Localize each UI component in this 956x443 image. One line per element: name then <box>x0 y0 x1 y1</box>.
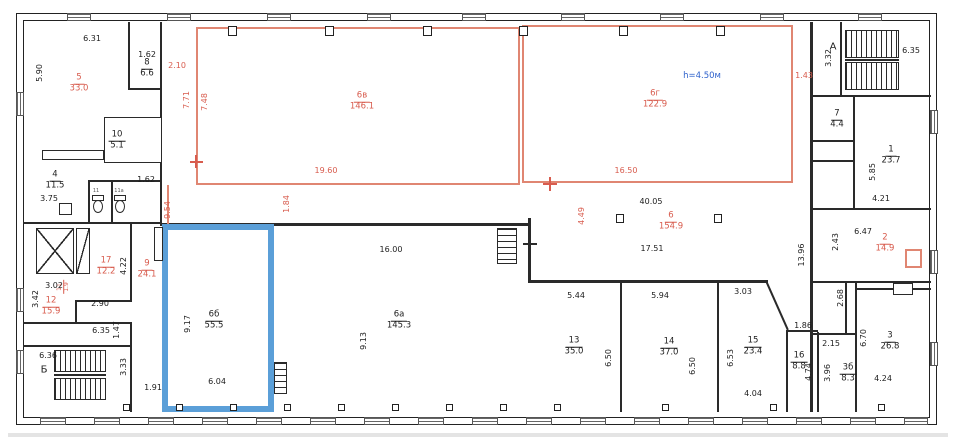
window <box>930 342 938 366</box>
window <box>256 417 282 425</box>
tick <box>529 237 531 251</box>
window <box>267 13 291 21</box>
dim-19-60: 19.60 <box>315 167 338 175</box>
stairs-a-flight <box>845 62 899 90</box>
room-label-10: 105.1 <box>109 131 126 152</box>
room-label-17: 1712.2 <box>97 257 116 278</box>
stairs-b-flight <box>54 378 106 400</box>
pilaster <box>230 404 237 411</box>
window <box>310 417 336 425</box>
dim-2-43: 2.43 <box>832 233 840 251</box>
dim-5-94: 5.94 <box>651 292 669 300</box>
window <box>796 417 822 425</box>
toilet-tank <box>114 195 126 201</box>
wall <box>810 22 813 412</box>
window <box>760 13 784 21</box>
window <box>526 417 552 425</box>
dim-2-15: 2.15 <box>822 340 840 348</box>
toilet-bowl <box>93 200 103 213</box>
dim-7-48: 7.48 <box>201 93 209 111</box>
red-tick <box>195 155 197 168</box>
floor-plan: 533.0 86.6 105.1 411.5 1712.2 924.1 1215… <box>0 0 956 443</box>
wall <box>853 95 855 208</box>
window <box>904 417 928 425</box>
wall <box>717 282 719 412</box>
window <box>364 417 390 425</box>
dim-9-17: 9.17 <box>184 315 192 333</box>
dim-1-62-b: 1.62 <box>137 176 155 184</box>
room-label-12: 1215.9 <box>42 297 61 318</box>
room-label-6: 6154.9 <box>659 212 683 233</box>
dim-6-53: 6.53 <box>727 349 735 367</box>
dim-4-22: 4.22 <box>120 257 128 275</box>
wall <box>130 322 132 412</box>
pilaster <box>338 404 345 411</box>
wall <box>128 88 162 90</box>
wall <box>23 222 162 224</box>
room-label-9: 924.1 <box>138 260 157 281</box>
window <box>930 250 938 274</box>
dim-9-54: 9.54 <box>164 201 172 219</box>
window <box>40 417 66 425</box>
column <box>714 214 722 223</box>
column <box>616 214 624 223</box>
stairs-a-flight <box>845 30 899 58</box>
dim-3-32: 3.32 <box>825 49 833 67</box>
pilaster <box>123 404 130 411</box>
toilet-tank <box>92 195 104 201</box>
toilet-bowl <box>115 200 125 213</box>
red-tick <box>549 177 551 191</box>
column <box>619 26 628 36</box>
window <box>850 417 876 425</box>
dim-6-35-b: 6.35 <box>902 47 920 55</box>
wall <box>845 59 899 61</box>
dim-2-10: 2.10 <box>168 62 186 70</box>
dim-4-24: 4.24 <box>874 375 892 383</box>
wc-label-11a: 11а <box>114 188 123 194</box>
wall <box>54 374 106 376</box>
dim-6-04: 6.04 <box>208 378 226 386</box>
dim-6-50-b: 6.50 <box>689 357 697 375</box>
radiator <box>154 227 163 261</box>
window <box>561 13 585 21</box>
dim-3-75: 3.75 <box>40 195 58 203</box>
room-label-7: 74.4 <box>830 110 844 131</box>
pilaster <box>770 404 777 411</box>
dim-1-91: 1.91 <box>144 384 162 392</box>
column <box>228 26 237 36</box>
dim-5-90: 5.90 <box>36 64 44 82</box>
room-label-14: 1437.0 <box>660 338 679 359</box>
column <box>325 26 334 36</box>
pilaster <box>662 404 669 411</box>
dim-1-47: 1.47 <box>113 321 121 339</box>
dim-6-35-a: 6.35 <box>92 327 110 335</box>
pilaster <box>284 404 291 411</box>
dim-1-62-a: 1.62 <box>138 51 156 59</box>
dim-9-13: 9.13 <box>360 332 368 350</box>
dim-7-71: 7.71 <box>183 91 191 109</box>
wall <box>111 182 113 222</box>
window <box>167 13 191 21</box>
dim-3-42: 3.42 <box>32 290 40 308</box>
column <box>519 26 528 36</box>
dim-6-31: 6.31 <box>83 35 101 43</box>
dim-16-00: 16.00 <box>380 246 403 254</box>
window <box>660 13 684 21</box>
wall <box>23 345 132 347</box>
window <box>930 110 938 134</box>
window <box>16 350 24 374</box>
wall <box>75 300 77 324</box>
wall <box>855 282 857 412</box>
dim-16-50: 16.50 <box>615 167 638 175</box>
pilaster <box>176 404 183 411</box>
dim-3-03: 3.03 <box>734 288 752 296</box>
dim-3-33: 3.33 <box>120 358 128 376</box>
pilaster <box>446 404 453 411</box>
wall <box>840 22 842 95</box>
elevator-shaft <box>36 228 74 274</box>
wall <box>812 140 855 142</box>
dim-6-70: 6.70 <box>860 329 868 347</box>
ceiling-height-note: h=4.50м <box>683 72 721 81</box>
elevator-shaft-small <box>76 228 90 274</box>
room-label-6b: 6б55.5 <box>205 311 224 332</box>
window <box>16 92 24 116</box>
window <box>580 417 606 425</box>
window <box>634 417 660 425</box>
room-label-13: 1335.0 <box>565 337 584 358</box>
wall <box>620 282 622 412</box>
dim-17-51: 17.51 <box>641 245 664 253</box>
pilaster <box>878 404 885 411</box>
wall <box>786 330 818 332</box>
wall <box>128 22 130 90</box>
room-label-6v: 6в146.1 <box>350 92 374 113</box>
room-label-2: 214.9 <box>876 234 895 255</box>
window <box>858 13 882 21</box>
window <box>94 417 120 425</box>
wall <box>812 160 855 162</box>
pilaster <box>500 404 507 411</box>
room-label-6g: 6г122.9 <box>643 90 667 111</box>
wall <box>812 333 856 335</box>
dim-5-44: 5.44 <box>567 292 585 300</box>
stairs-b-label: Б <box>41 365 48 376</box>
wall <box>88 180 90 222</box>
wall <box>812 95 931 97</box>
dim-1-84: 1.84 <box>283 195 291 213</box>
window <box>418 417 444 425</box>
column <box>716 26 725 36</box>
window <box>16 288 24 312</box>
scan-artifact <box>8 433 948 437</box>
dim-6-36: 6.36 <box>39 352 57 360</box>
window <box>367 13 391 21</box>
dim-13-96: 13.96 <box>798 244 806 267</box>
red-fixture <box>905 249 922 268</box>
dim-6-50-a: 6.50 <box>605 349 613 367</box>
counter <box>42 150 104 160</box>
room-label-3b: 3б8.3 <box>840 364 857 385</box>
wall <box>812 281 931 283</box>
column <box>423 26 432 36</box>
window <box>67 13 91 21</box>
dim-4-49: 4.49 <box>578 207 586 225</box>
window <box>472 417 498 425</box>
dim-5-85: 5.85 <box>869 163 877 181</box>
window <box>742 417 768 425</box>
window <box>202 417 228 425</box>
room-label-6a: 6а145.3 <box>387 311 411 332</box>
room-label-1: 123.7 <box>882 146 901 167</box>
pilaster <box>392 404 399 411</box>
window <box>148 417 174 425</box>
room-label-4: 411.5 <box>46 171 65 192</box>
dim-4-21: 4.21 <box>872 195 890 203</box>
stairs-b-flight <box>54 350 106 372</box>
dim-4-04: 4.04 <box>744 390 762 398</box>
dim-4-74: 4.74 <box>805 363 813 381</box>
dim-3-96: 3.96 <box>824 364 832 382</box>
wall <box>812 208 931 210</box>
wall <box>528 280 768 283</box>
duct-shaft <box>893 283 913 295</box>
dim-3-02: 3.02 <box>45 282 63 290</box>
wall <box>130 222 132 302</box>
pilaster <box>554 404 561 411</box>
wall <box>817 332 819 412</box>
wc-label-11: 11 <box>93 188 99 194</box>
dim-2-90: 2.90 <box>91 300 109 308</box>
window <box>688 417 714 425</box>
room-label-3: 326.8 <box>881 332 900 353</box>
radiator <box>274 362 287 394</box>
wall <box>786 330 788 412</box>
room-label-15: 1523.4 <box>744 337 763 358</box>
dim-40-05: 40.05 <box>640 198 663 206</box>
dim-2-68: 2.68 <box>837 289 845 307</box>
dim-1-43: 1.43 <box>795 72 813 80</box>
sink <box>59 203 72 215</box>
wall <box>845 282 847 333</box>
room-label-5: 533.0 <box>70 74 89 95</box>
dim-6-47: 6.47 <box>854 228 872 236</box>
room-label-8: 86.6 <box>140 59 154 80</box>
window <box>462 13 486 21</box>
dim-1-86: 1.86 <box>794 322 812 330</box>
duct-shaft <box>497 228 517 264</box>
